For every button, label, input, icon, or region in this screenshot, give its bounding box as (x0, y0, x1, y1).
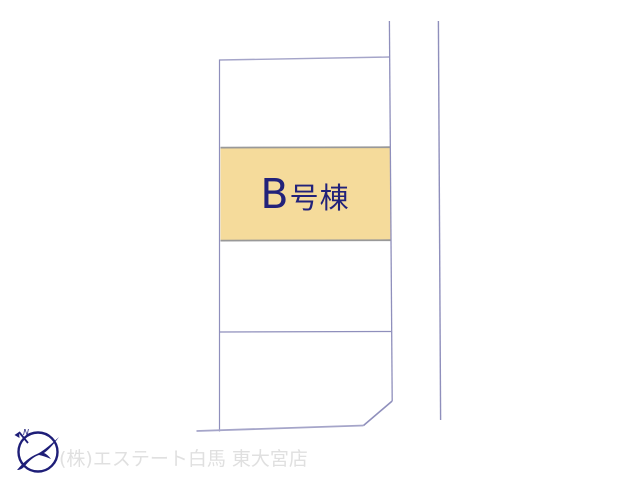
lot-b-label: B号棟 (220, 147, 390, 241)
right-boundary-line (438, 21, 440, 420)
north-arrowhead (15, 432, 20, 438)
lot-section-4 (220, 332, 392, 426)
lot-divider-lower (220, 332, 391, 333)
plot-bottom-road-line (197, 426, 364, 432)
company-name: (株)エステート白馬 東大宮店 (59, 449, 308, 469)
plot-top-edge (220, 57, 390, 60)
company-logo: N (13, 426, 65, 476)
logo-north-letter: N (23, 428, 29, 437)
plot-map-page: B号棟 N (株)エステート白馬 東大宮店 (0, 0, 640, 480)
plot-corner-chamfer (364, 401, 393, 426)
lot-section-1 (220, 58, 390, 148)
lot-section-3 (220, 241, 391, 332)
